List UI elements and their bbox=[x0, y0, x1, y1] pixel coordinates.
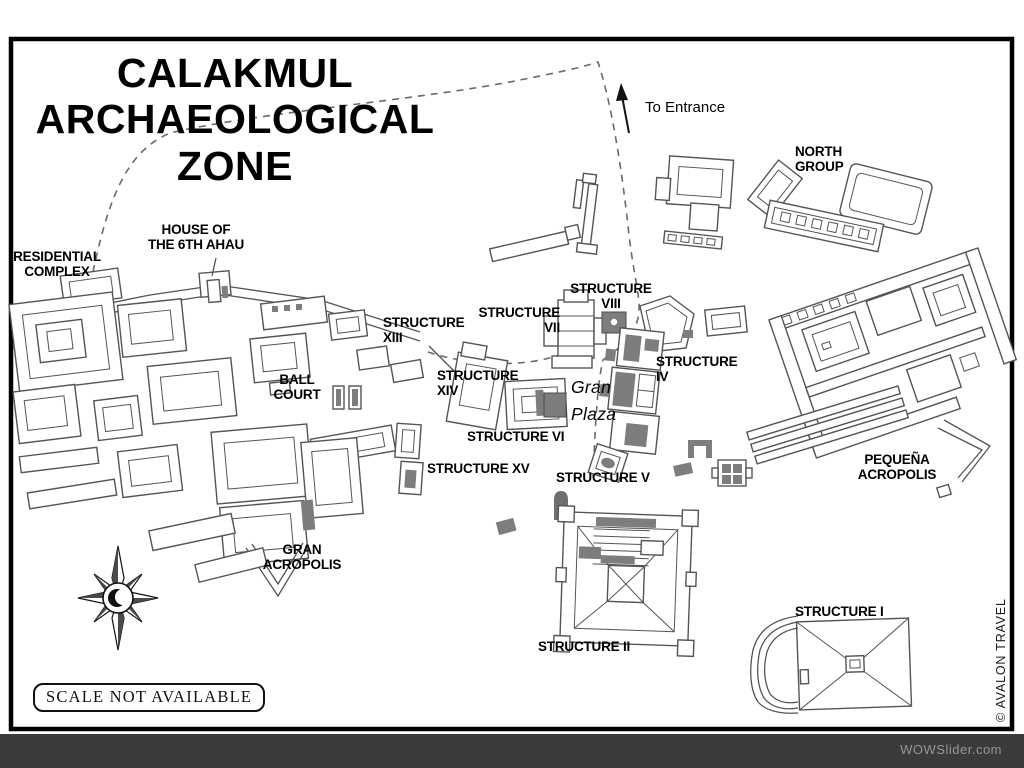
structure-ii-pyramid bbox=[553, 506, 698, 657]
credit-text: © AVALON TRAVEL bbox=[994, 598, 1008, 722]
compass-rose-icon bbox=[78, 546, 158, 650]
slider-bottom-bar: WOWSlider.com bbox=[0, 734, 1024, 768]
structure-xv-blocks bbox=[395, 423, 423, 495]
label-structure-vii: STRUCTURE VII bbox=[460, 306, 560, 336]
label-structure-vi: STRUCTURE VI bbox=[467, 430, 564, 445]
label-structure-viii: STRUCTURE VIII bbox=[561, 282, 661, 312]
label-structure-xiii: STRUCTURE XIII bbox=[383, 316, 464, 346]
label-structure-iv: STRUCTURE IV bbox=[656, 355, 737, 385]
small-mounds bbox=[673, 440, 752, 486]
entrance-arrow-icon bbox=[616, 83, 629, 133]
label-gran-plaza: Gran Plaza bbox=[571, 374, 616, 428]
label-structure-xiv: STRUCTURE XIV bbox=[437, 369, 518, 399]
entrance-label: To Entrance bbox=[645, 99, 725, 116]
scale-note-badge: SCALE NOT AVAILABLE bbox=[33, 683, 265, 712]
label-residential-complex: RESIDENTIAL COMPLEX bbox=[7, 250, 107, 280]
label-structure-xv: STRUCTURE XV bbox=[427, 462, 530, 477]
west-complex-structures bbox=[9, 268, 423, 596]
page-title: CALAKMUL ARCHAEOLOGICAL ZONE bbox=[35, 50, 435, 189]
label-gran-acropolis: GRAN ACROPOLIS bbox=[252, 543, 352, 573]
map-canvas[interactable]: CALAKMUL ARCHAEOLOGICAL ZONE To Entrance… bbox=[0, 0, 1024, 768]
label-north-group: NORTH GROUP bbox=[795, 145, 844, 175]
structure-i-pyramid bbox=[751, 616, 912, 713]
label-house-6th-ahau: HOUSE OF THE 6TH AHAU bbox=[146, 223, 246, 253]
label-pequena-acropolis: PEQUEÑA ACROPOLIS bbox=[847, 453, 947, 483]
wowslider-link[interactable]: WOWSlider.com bbox=[900, 742, 1002, 757]
stelae-rows bbox=[490, 173, 598, 261]
label-ball-court: BALL COURT bbox=[247, 373, 347, 403]
label-structure-v: STRUCTURE V bbox=[556, 471, 650, 486]
label-structure-i: STRUCTURE I bbox=[795, 605, 884, 620]
label-structure-ii: STRUCTURE II bbox=[538, 640, 630, 655]
